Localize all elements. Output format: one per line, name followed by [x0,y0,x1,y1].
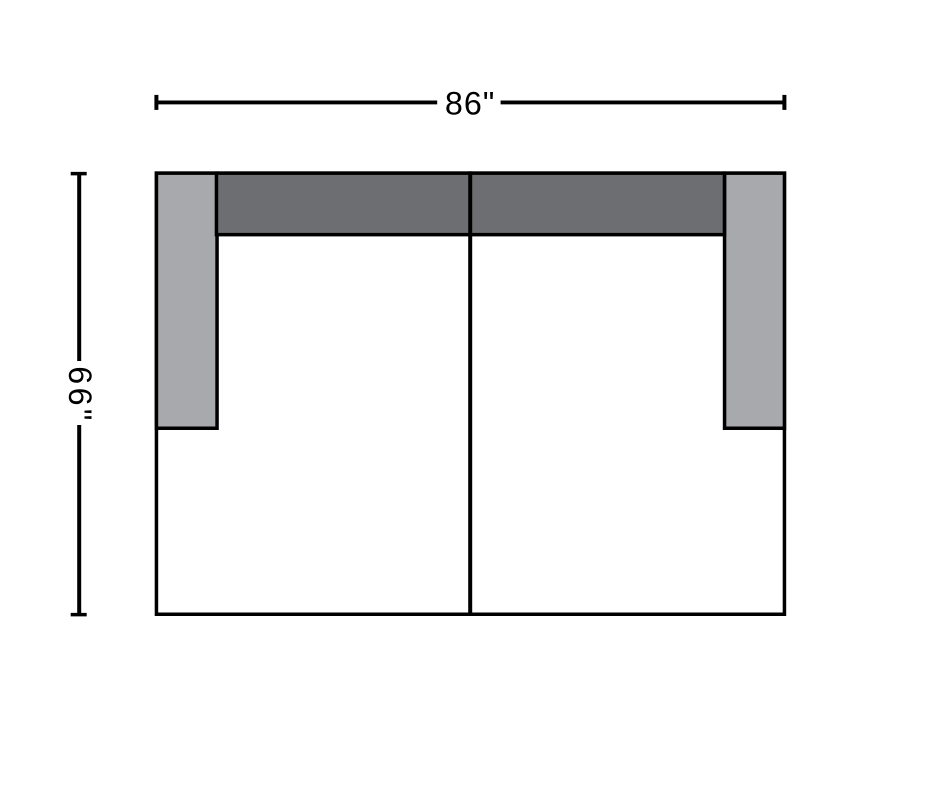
svg-text:66": 66" [62,366,98,420]
svg-text:86": 86" [445,85,495,121]
